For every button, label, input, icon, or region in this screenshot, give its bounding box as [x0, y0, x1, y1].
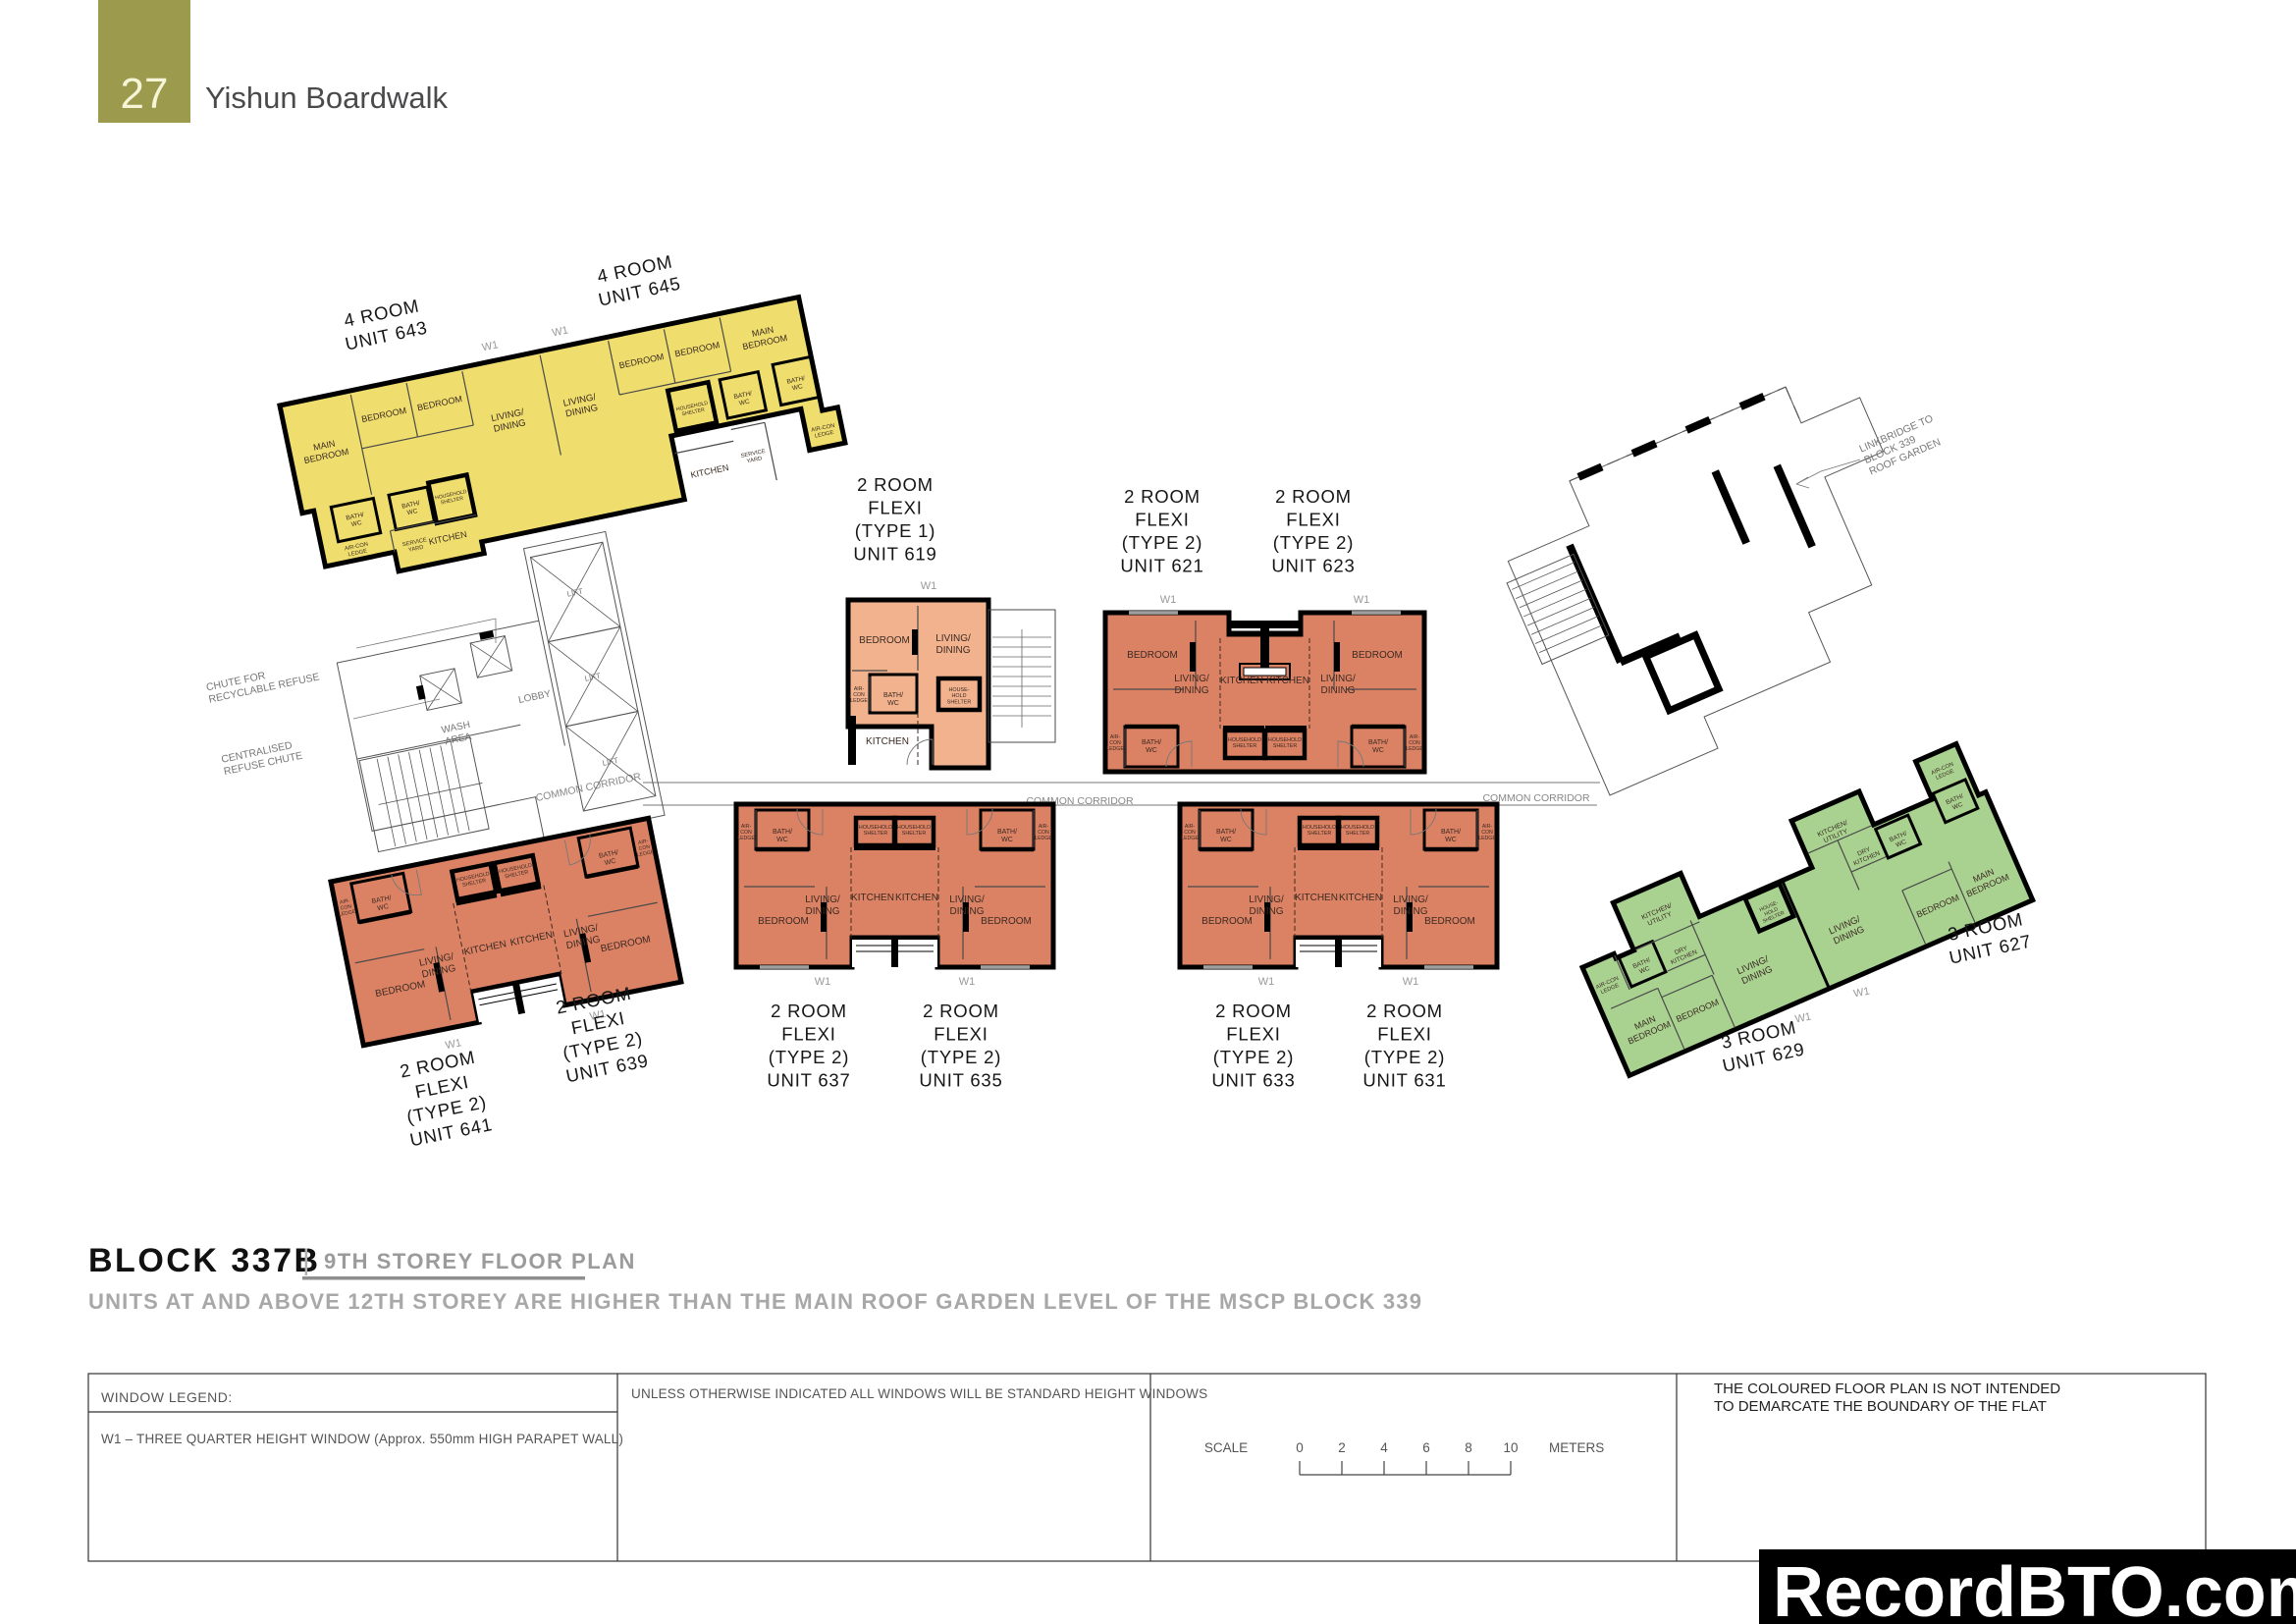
svg-text:W1: W1	[1258, 976, 1275, 988]
svg-text:BEDROOM: BEDROOM	[1424, 916, 1475, 927]
svg-text:COMMON CORRIDOR: COMMON CORRIDOR	[535, 771, 643, 804]
svg-text:HOUSEHOLDSHELTER: HOUSEHOLDSHELTER	[859, 825, 892, 837]
svg-text:LIVING/DINING: LIVING/DINING	[1174, 674, 1209, 696]
svg-text:2 ROOMFLEXI(TYPE 2)UNIT 623: 2 ROOMFLEXI(TYPE 2)UNIT 623	[1271, 486, 1355, 576]
svg-text:HOUSEHOLDSHELTER: HOUSEHOLDSHELTER	[897, 825, 931, 837]
svg-text:RecordBTO.com: RecordBTO.com	[1773, 1553, 2296, 1624]
svg-text:Yishun Boardwalk: Yishun Boardwalk	[205, 81, 448, 115]
svg-text:|: |	[302, 1244, 310, 1276]
svg-text:W1: W1	[1852, 986, 1871, 1001]
svg-text:2 ROOMFLEXI(TYPE 1)UNIT 619: 2 ROOMFLEXI(TYPE 1)UNIT 619	[853, 474, 936, 565]
svg-text:LIVING/DINING: LIVING/DINING	[935, 633, 971, 656]
svg-text:2 ROOMFLEXI(TYPE 2)UNIT 635: 2 ROOMFLEXI(TYPE 2)UNIT 635	[919, 1001, 1002, 1091]
svg-text:LIVING/DINING: LIVING/DINING	[1249, 894, 1284, 917]
svg-text:LIVING/DINING: LIVING/DINING	[949, 894, 985, 917]
svg-text:KITCHEN: KITCHEN	[866, 736, 909, 747]
svg-text:BEDROOM: BEDROOM	[1352, 650, 1403, 661]
svg-text:UNITS AT AND ABOVE 12TH STOREY: UNITS AT AND ABOVE 12TH STOREY ARE HIGHE…	[88, 1289, 1422, 1314]
svg-text:2 ROOMFLEXI(TYPE 2)UNIT 631: 2 ROOMFLEXI(TYPE 2)UNIT 631	[1362, 1001, 1446, 1091]
svg-text:SERVICEYARD: SERVICEYARD	[740, 449, 768, 466]
svg-text:W1: W1	[1354, 594, 1370, 606]
svg-text:LOBBY: LOBBY	[517, 688, 552, 706]
svg-text:2 ROOMFLEXI(TYPE 2)UNIT 641: 2 ROOMFLEXI(TYPE 2)UNIT 641	[395, 1046, 495, 1150]
svg-text:2 ROOMFLEXI(TYPE 2)UNIT 639: 2 ROOMFLEXI(TYPE 2)UNIT 639	[551, 982, 651, 1086]
svg-text:HOUSEHOLDSHELTER: HOUSEHOLDSHELTER	[1228, 737, 1261, 749]
svg-text:KITCHEN: KITCHEN	[690, 462, 730, 480]
svg-text:2 ROOMFLEXI(TYPE 2)UNIT 637: 2 ROOMFLEXI(TYPE 2)UNIT 637	[767, 1001, 850, 1091]
svg-text:W1 – THREE QUARTER HEIGHT WI: W1 – THREE QUARTER HEIGHT WINDOW (Approx…	[101, 1432, 623, 1446]
svg-text:HOUSEHOLDSHELTER: HOUSEHOLDSHELTER	[1303, 825, 1336, 837]
svg-text:W1: W1	[1160, 594, 1177, 606]
svg-text:W1: W1	[551, 324, 569, 339]
svg-text:CENTRALISEDREFUSE CHUTE: CENTRALISEDREFUSE CHUTE	[220, 737, 303, 778]
svg-text:6: 6	[1422, 1440, 1430, 1455]
svg-text:CHUTE FORRECYCLABLE REFUSE: CHUTE FORRECYCLABLE REFUSE	[205, 659, 321, 705]
svg-text:8: 8	[1465, 1440, 1472, 1455]
svg-text:SCALE: SCALE	[1204, 1440, 1248, 1455]
svg-text:4: 4	[1380, 1440, 1388, 1455]
svg-text:4 ROOMUNIT 643: 4 ROOMUNIT 643	[339, 295, 430, 354]
svg-text:LIVING/DINING: LIVING/DINING	[805, 894, 840, 917]
svg-text:27: 27	[121, 70, 169, 118]
svg-text:BEDROOM: BEDROOM	[981, 916, 1032, 927]
svg-text:KITCHEN: KITCHEN	[851, 893, 894, 903]
svg-text:9TH STOREY FLOOR PLAN: 9TH STOREY FLOOR PLAN	[324, 1249, 636, 1273]
svg-text:KITCHEN: KITCHEN	[1339, 893, 1382, 903]
svg-text:HOUSEHOLDSHELTER: HOUSEHOLDSHELTER	[1268, 737, 1302, 749]
svg-text:THE COLOURED FLOOR PLAN IS NOT: THE COLOURED FLOOR PLAN IS NOT INTENDED	[1714, 1380, 2060, 1397]
svg-text:UNLESS OTHERWISE INDICATED: UNLESS OTHERWISE INDICATED ALL WINDOWS W…	[631, 1386, 1207, 1401]
svg-text:WASHAREA: WASHAREA	[441, 720, 474, 748]
svg-text:KITCHEN: KITCHEN	[1220, 676, 1263, 686]
svg-text:BEDROOM: BEDROOM	[859, 635, 910, 646]
svg-text:BEDROOM: BEDROOM	[1201, 916, 1253, 927]
svg-text:WINDOW LEGEND:: WINDOW LEGEND:	[101, 1389, 233, 1405]
svg-text:BEDROOM: BEDROOM	[1127, 650, 1178, 661]
svg-text:10: 10	[1503, 1440, 1518, 1455]
svg-text:4 ROOMUNIT 645: 4 ROOMUNIT 645	[592, 250, 683, 310]
svg-text:TO DEMARCATE THE BOUNDARY OF T: TO DEMARCATE THE BOUNDARY OF THE FLAT	[1714, 1398, 2047, 1415]
svg-text:KITCHEN: KITCHEN	[1266, 676, 1309, 686]
svg-text:W1: W1	[1403, 976, 1419, 988]
svg-text:W1: W1	[1794, 1010, 1813, 1025]
svg-text:HOUSEHOLDSHELTER: HOUSEHOLDSHELTER	[1341, 825, 1374, 837]
svg-text:2: 2	[1338, 1440, 1346, 1455]
svg-text:2 ROOMFLEXI(TYPE 2)UNIT 621: 2 ROOMFLEXI(TYPE 2)UNIT 621	[1120, 486, 1203, 576]
svg-text:W1: W1	[815, 976, 831, 988]
svg-text:W1: W1	[921, 580, 937, 592]
svg-text:W1: W1	[959, 976, 976, 988]
svg-text:BEDROOM: BEDROOM	[758, 916, 809, 927]
svg-text:KITCHEN: KITCHEN	[895, 893, 938, 903]
svg-text:BLOCK 337B: BLOCK 337B	[88, 1242, 321, 1279]
svg-text:LIVING/DINING: LIVING/DINING	[1393, 894, 1428, 917]
svg-text:KITCHEN: KITCHEN	[1295, 893, 1338, 903]
svg-text:W1: W1	[481, 339, 500, 353]
svg-text:METERS: METERS	[1549, 1440, 1604, 1455]
svg-text:2 ROOMFLEXI(TYPE 2)UNIT 633: 2 ROOMFLEXI(TYPE 2)UNIT 633	[1211, 1001, 1295, 1091]
svg-text:0: 0	[1296, 1440, 1304, 1455]
svg-text:LIVING/DINING: LIVING/DINING	[1320, 674, 1356, 696]
